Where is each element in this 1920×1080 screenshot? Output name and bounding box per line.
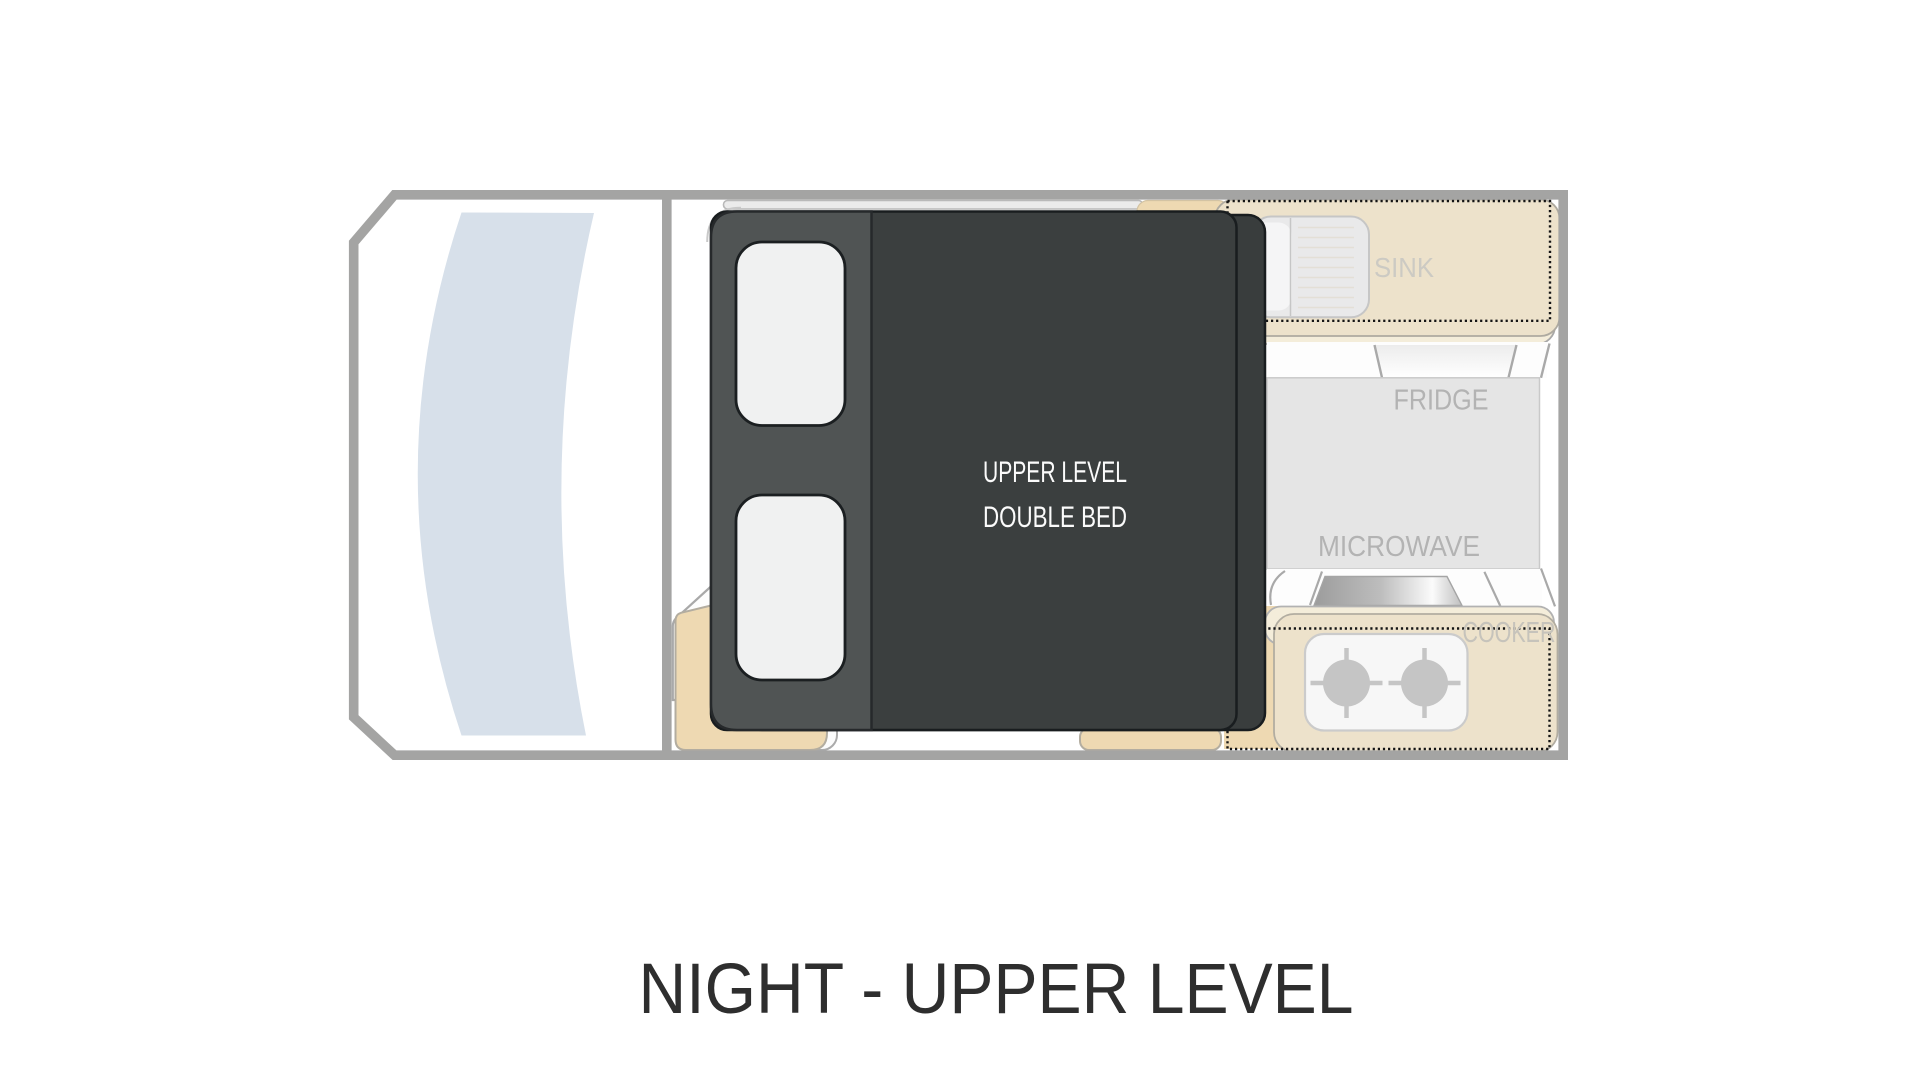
svg-text:SINK: SINK [1374,252,1434,283]
svg-text:UPPER LEVEL: UPPER LEVEL [983,456,1127,489]
svg-text:DOUBLE BED: DOUBLE BED [983,501,1127,534]
svg-text:MICROWAVE: MICROWAVE [1318,531,1480,563]
svg-text:COOKER: COOKER [1463,617,1556,649]
svg-text:NIGHT - UPPER LEVEL: NIGHT - UPPER LEVEL [639,950,1354,1029]
svg-text:FRIDGE: FRIDGE [1394,385,1489,417]
